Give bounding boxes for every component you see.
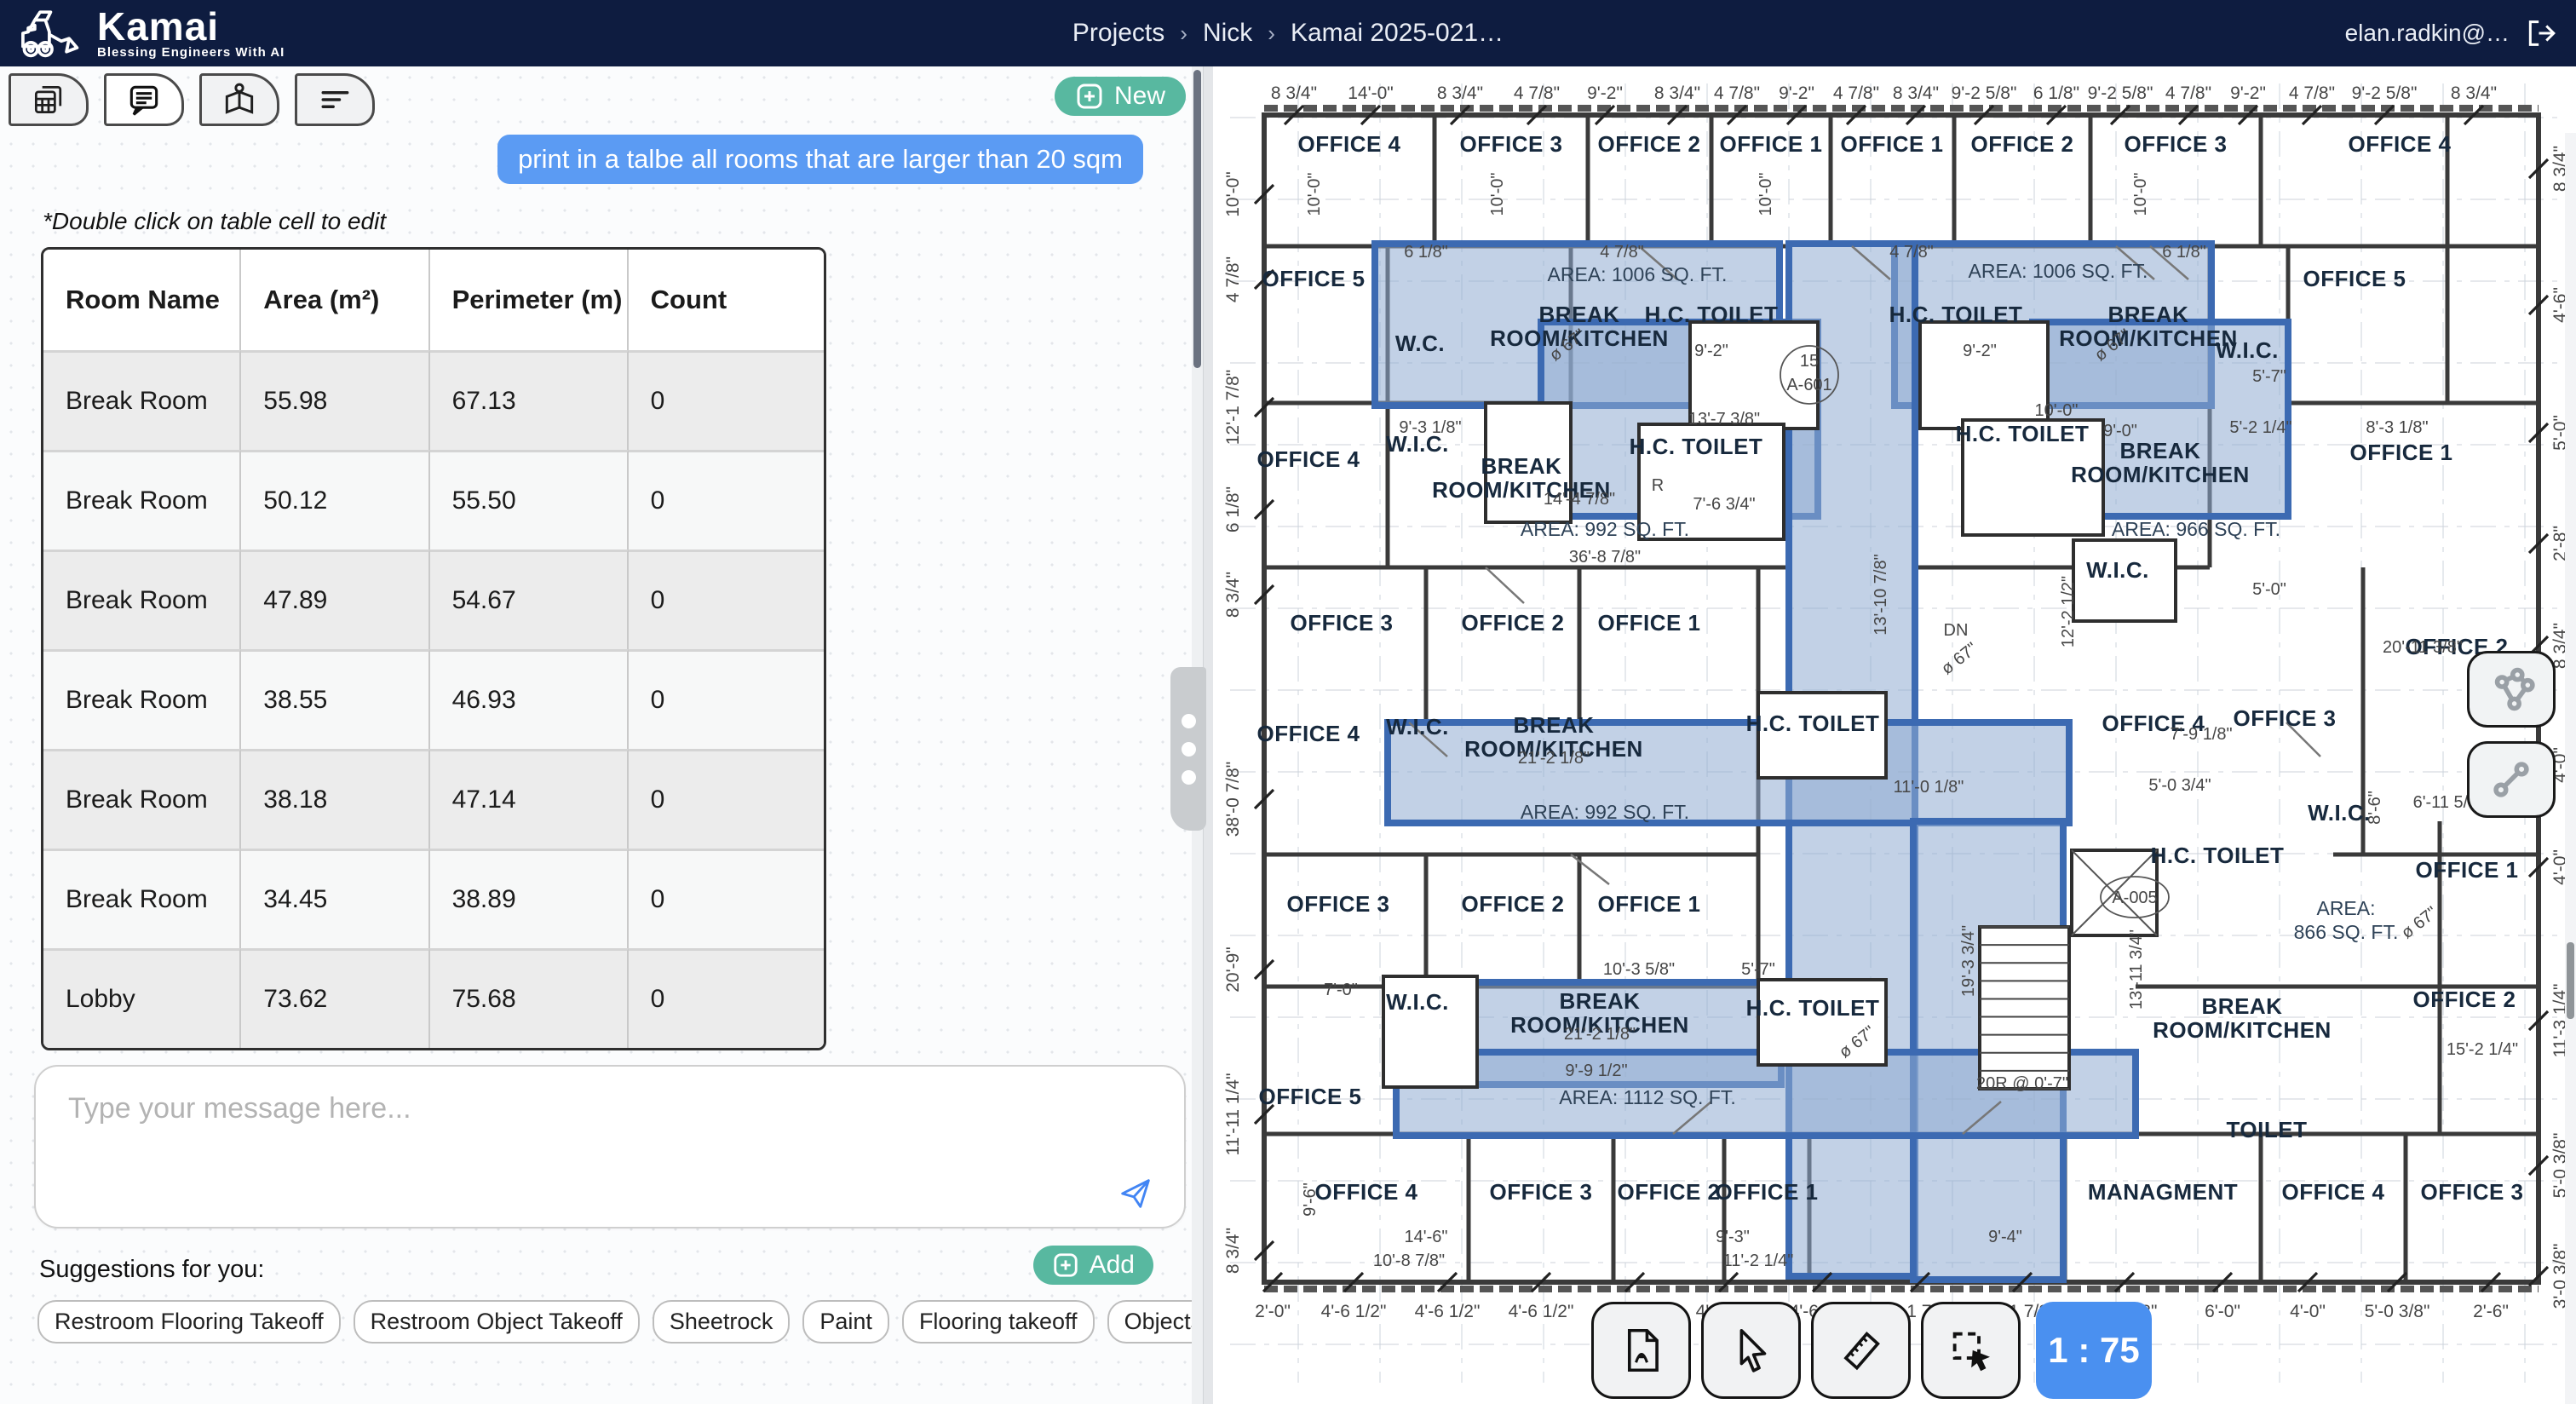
- table-cell[interactable]: 38.89: [430, 849, 629, 948]
- table-cell[interactable]: 55.50: [430, 450, 629, 550]
- svg-text:OFFICE 3: OFFICE 3: [1286, 891, 1389, 917]
- svg-text:AREA: 1006 SQ. FT.: AREA: 1006 SQ. FT.: [1548, 263, 1728, 285]
- tab-plan-library[interactable]: [199, 73, 279, 126]
- table-cell[interactable]: Break Room: [43, 450, 241, 550]
- svg-text:H.C. TOILET: H.C. TOILET: [1746, 711, 1880, 736]
- svg-text:8 3/4": 8 3/4": [1223, 572, 1243, 618]
- svg-text:9'-0": 9'-0": [2103, 422, 2137, 440]
- suggestions-row: Suggestions for you: Add: [39, 1256, 1169, 1284]
- svg-text:10'-8 7/8": 10'-8 7/8": [1373, 1252, 1445, 1270]
- floor-plan-svg[interactable]: OFFICE 4OFFICE 3OFFICE 2OFFICE 1OFFICE 1…: [1213, 66, 2576, 1404]
- breadcrumb-project[interactable]: Kamai 2025-021…: [1291, 19, 1504, 48]
- table-cell[interactable]: 38.55: [241, 649, 429, 749]
- table-cell[interactable]: 38.18: [241, 749, 429, 849]
- svg-text:5'-2 1/4": 5'-2 1/4": [2229, 418, 2291, 437]
- svg-text:A-005: A-005: [2112, 889, 2157, 907]
- svg-text:9'-6": 9'-6": [1301, 1182, 1320, 1217]
- tables-icon: [30, 81, 67, 118]
- svg-text:OFFICE 1: OFFICE 1: [1715, 1179, 1818, 1205]
- brand[interactable]: Kamai Blessing Engineers With AI: [0, 7, 285, 60]
- breadcrumb-folder[interactable]: Nick: [1203, 19, 1252, 48]
- column-header-area: Area (m²): [241, 250, 429, 350]
- logout-icon[interactable]: [2523, 16, 2557, 50]
- svg-text:2'-0": 2'-0": [1255, 1302, 1291, 1321]
- suggestion-chip[interactable]: Restroom Flooring Takeoff: [37, 1300, 341, 1344]
- svg-text:H.C. TOILET: H.C. TOILET: [2151, 843, 2285, 868]
- svg-text:6'-0": 6'-0": [2205, 1302, 2240, 1321]
- svg-text:21'-2 1/8": 21'-2 1/8": [1518, 749, 1590, 768]
- svg-text:4 7/8": 4 7/8": [1714, 83, 1760, 103]
- svg-text:H.C. TOILET: H.C. TOILET: [1746, 995, 1880, 1021]
- table-cell[interactable]: 46.93: [430, 649, 629, 749]
- brand-text: Kamai Blessing Engineers With AI: [97, 8, 285, 60]
- polygon-icon: [2487, 665, 2536, 714]
- svg-text:R: R: [1652, 476, 1664, 495]
- plus-square-icon: [1075, 82, 1104, 111]
- user-email: elan.radkin@…: [2345, 20, 2510, 47]
- svg-text:5'-0 3/8": 5'-0 3/8": [2365, 1302, 2430, 1321]
- svg-text:12'-2 1/2": 12'-2 1/2": [2059, 576, 2078, 647]
- breadcrumb-projects[interactable]: Projects: [1072, 19, 1164, 48]
- svg-text:5'-0 3/4": 5'-0 3/4": [2148, 776, 2211, 795]
- svg-text:15'-2 1/4": 15'-2 1/4": [2447, 1040, 2518, 1059]
- table-cell[interactable]: 34.45: [241, 849, 429, 948]
- svg-text:12'-1 7/8": 12'-1 7/8": [1223, 370, 1243, 446]
- suggestion-chip[interactable]: Paint: [802, 1300, 889, 1344]
- svg-text:5'-0": 5'-0": [2252, 580, 2286, 599]
- table-row[interactable]: Break Room55.9867.130: [43, 350, 824, 450]
- svg-text:OFFICE 1: OFFICE 1: [2415, 857, 2518, 883]
- svg-text:9'-2": 9'-2": [2230, 83, 2266, 103]
- suggestions-label: Suggestions for you:: [39, 1256, 264, 1284]
- svg-text:AREA: 992 SQ. FT.: AREA: 992 SQ. FT.: [1521, 801, 1689, 823]
- svg-text:OFFICE 2: OFFICE 2: [1461, 891, 1564, 917]
- pdf-file-icon: [1615, 1324, 1668, 1377]
- svg-text:OFFICE 4: OFFICE 4: [1256, 446, 1360, 472]
- svg-text:8 3/4": 8 3/4": [1437, 83, 1483, 103]
- svg-text:7'-6 3/4": 7'-6 3/4": [1693, 495, 1755, 514]
- table-cell[interactable]: 0: [629, 450, 824, 550]
- svg-text:9'-2": 9'-2": [1694, 342, 1728, 360]
- svg-text:9'-3 1/8": 9'-3 1/8": [1399, 418, 1461, 437]
- table-row[interactable]: Break Room50.1255.500: [43, 450, 824, 550]
- svg-text:H.C. TOILET: H.C. TOILET: [1630, 434, 1763, 459]
- brand-name: Kamai: [97, 8, 285, 45]
- svg-text:5'-7": 5'-7": [1741, 960, 1775, 979]
- svg-text:OFFICE 1: OFFICE 1: [1719, 131, 1822, 157]
- table-cell[interactable]: 54.67: [430, 550, 629, 649]
- table-cell[interactable]: Break Room: [43, 649, 241, 749]
- tab-takeoff-tables[interactable]: [9, 73, 89, 126]
- table-edit-note: *Double click on table cell to edit: [43, 208, 386, 235]
- svg-text:OFFICE 3: OFFICE 3: [2233, 705, 2336, 731]
- svg-text:20'-9": 20'-9": [1223, 947, 1243, 993]
- floor-plan-viewport: OFFICE 4OFFICE 3OFFICE 2OFFICE 1OFFICE 1…: [1213, 66, 2576, 1404]
- svg-text:2'-6": 2'-6": [2473, 1302, 2509, 1321]
- svg-text:20R @ 0'-7": 20R @ 0'-7": [1976, 1074, 2068, 1093]
- input-placeholder: Type your message here...: [68, 1092, 411, 1125]
- svg-text:AREA: 992 SQ. FT.: AREA: 992 SQ. FT.: [1521, 518, 1689, 540]
- table-cell[interactable]: 0: [629, 849, 824, 948]
- breadcrumb-separator: ›: [1268, 20, 1275, 47]
- svg-text:4'-0": 4'-0": [2290, 1302, 2326, 1321]
- table-cell[interactable]: Lobby: [43, 948, 241, 1048]
- panel-tabbar: New: [0, 66, 1203, 131]
- svg-text:OFFICE 3: OFFICE 3: [1489, 1179, 1592, 1205]
- new-button-label: New: [1114, 82, 1165, 111]
- svg-text:9'-3": 9'-3": [1716, 1228, 1750, 1246]
- table-cell[interactable]: 0: [629, 649, 824, 749]
- send-icon[interactable]: [1116, 1174, 1155, 1213]
- table-cell[interactable]: 67.13: [430, 350, 629, 450]
- app-root: Kamai Blessing Engineers With AI Project…: [0, 0, 2576, 1404]
- svg-text:15: 15: [1800, 352, 1819, 371]
- svg-text:OFFICE 4: OFFICE 4: [1297, 131, 1400, 157]
- svg-text:MANAGMENT: MANAGMENT: [2088, 1179, 2238, 1205]
- cursor-tool-button[interactable]: [1701, 1302, 1801, 1399]
- svg-text:W.C.: W.C.: [1395, 331, 1445, 356]
- svg-text:8'-3 1/8": 8'-3 1/8": [2366, 418, 2428, 437]
- svg-text:W.I.C.: W.I.C.: [1386, 989, 1449, 1015]
- svg-text:6 1/8": 6 1/8": [1404, 243, 1448, 262]
- svg-text:W.I.C.: W.I.C.: [2308, 800, 2371, 826]
- svg-text:4'-6 1/2": 4'-6 1/2": [1415, 1302, 1481, 1321]
- svg-text:4 7/8": 4 7/8": [1600, 243, 1644, 262]
- svg-text:5'-7": 5'-7": [2252, 367, 2286, 386]
- svg-text:9'-2": 9'-2": [1779, 83, 1814, 103]
- suggestion-chip[interactable]: Flooring takeoff: [902, 1300, 1095, 1344]
- plus-square-icon: [1052, 1252, 1079, 1279]
- svg-text:A-601: A-601: [1786, 376, 1831, 394]
- svg-text:8'-6": 8'-6": [2366, 791, 2384, 825]
- table-row[interactable]: Break Room38.5546.930: [43, 649, 824, 749]
- svg-text:OFFICE 4: OFFICE 4: [2281, 1179, 2384, 1205]
- polygon-takeoff-button[interactable]: [2467, 651, 2556, 728]
- add-button-label: Add: [1090, 1251, 1135, 1280]
- svg-text:4 7/8": 4 7/8": [1889, 243, 1934, 262]
- svg-text:10'-3 5/8": 10'-3 5/8": [1603, 960, 1675, 979]
- column-header-perimeter: Perimeter (m): [430, 250, 629, 350]
- svg-text:8 3/4": 8 3/4": [1654, 83, 1700, 103]
- svg-text:H.C. TOILET: H.C. TOILET: [1645, 302, 1779, 327]
- svg-text:4 7/8": 4 7/8": [1514, 83, 1560, 103]
- svg-text:OFFICE 2: OFFICE 2: [1597, 131, 1700, 157]
- svg-text:4 7/8": 4 7/8": [2165, 83, 2211, 103]
- suggestion-chip[interactable]: Sheetrock: [653, 1300, 791, 1344]
- breadcrumb: Projects › Nick › Kamai 2025-021…: [1072, 19, 1504, 48]
- svg-text:6 1/8": 6 1/8": [2033, 83, 2079, 103]
- line-segment-icon: [2487, 755, 2536, 804]
- svg-text:38'-0 7/8": 38'-0 7/8": [1223, 762, 1243, 837]
- svg-text:OFFICE 3: OFFICE 3: [2124, 131, 2227, 157]
- svg-text:OFFICE 4: OFFICE 4: [1256, 721, 1360, 746]
- svg-text:OFFICE 2: OFFICE 2: [1970, 131, 2073, 157]
- svg-text:OFFICE 5: OFFICE 5: [1262, 266, 1365, 291]
- plan-toolbar: 1 : 75: [1591, 1302, 2152, 1399]
- cursor-icon: [1725, 1324, 1778, 1377]
- svg-text:4'-6 1/2": 4'-6 1/2": [1321, 1302, 1387, 1321]
- svg-text:9'-2 5/8": 9'-2 5/8": [2352, 83, 2418, 103]
- svg-text:AREA: 1006 SQ. FT.: AREA: 1006 SQ. FT.: [1969, 260, 2148, 282]
- message-input[interactable]: Type your message here...: [34, 1065, 1186, 1228]
- table-cell[interactable]: 73.62: [241, 948, 429, 1048]
- rooms-table[interactable]: Room Name Area (m²) Perimeter (m) Count …: [41, 247, 826, 1050]
- table-cell[interactable]: 50.12: [241, 450, 429, 550]
- svg-text:OFFICE 2: OFFICE 2: [2412, 987, 2516, 1012]
- table-cell[interactable]: 75.68: [430, 948, 629, 1048]
- svg-text:10'-0": 10'-0": [2131, 173, 2150, 216]
- table-row[interactable]: Break Room34.4538.890: [43, 849, 824, 948]
- svg-text:8 3/4": 8 3/4": [2451, 83, 2497, 103]
- marquee-select-button[interactable]: [1921, 1302, 2021, 1399]
- svg-text:11'-11 1/4": 11'-11 1/4": [1223, 1073, 1243, 1155]
- svg-text:OFFICE 5: OFFICE 5: [2303, 266, 2406, 291]
- svg-text:10'-0": 10'-0": [1223, 171, 1243, 217]
- top-navbar: Kamai Blessing Engineers With AI Project…: [0, 0, 2576, 66]
- svg-text:10'-0": 10'-0": [2035, 401, 2079, 420]
- user-message-bubble: print in a talbe all rooms that are larg…: [497, 135, 1143, 184]
- svg-text:OFFICE 1: OFFICE 1: [1597, 891, 1700, 917]
- svg-text:OFFICE 2: OFFICE 2: [1461, 610, 1564, 636]
- table-cell[interactable]: Break Room: [43, 849, 241, 948]
- column-header-room-name: Room Name: [43, 250, 241, 350]
- table-row[interactable]: Break Room47.8954.670: [43, 550, 824, 649]
- table-cell[interactable]: 0: [629, 948, 824, 1048]
- svg-text:9'-2 5/8": 9'-2 5/8": [2088, 83, 2153, 103]
- table-cell[interactable]: Break Room: [43, 350, 241, 450]
- svg-text:36'-8 7/8": 36'-8 7/8": [1569, 548, 1641, 567]
- svg-text:14'-0": 14'-0": [1348, 83, 1394, 103]
- sort-lines-icon: [316, 81, 354, 118]
- svg-text:W.I.C.: W.I.C.: [2216, 337, 2279, 363]
- svg-text:6 1/8": 6 1/8": [2162, 243, 2206, 262]
- svg-text:4 7/8": 4 7/8": [1833, 83, 1879, 103]
- svg-text:OFFICE 2: OFFICE 2: [1617, 1179, 1720, 1205]
- svg-text:W.I.C.: W.I.C.: [2086, 557, 2149, 583]
- column-header-count: Count: [629, 250, 824, 350]
- panel-resize-handle[interactable]: [1170, 667, 1206, 831]
- measure-tool-button[interactable]: [1811, 1302, 1911, 1399]
- table-cell[interactable]: 0: [629, 350, 824, 450]
- svg-text:10'-0": 10'-0": [1488, 173, 1507, 216]
- svg-text:H.C. TOILET: H.C. TOILET: [1889, 302, 2023, 327]
- svg-text:9'-9 1/2": 9'-9 1/2": [1565, 1062, 1627, 1080]
- svg-text:OFFICE 1: OFFICE 1: [1840, 131, 1943, 157]
- svg-text:OFFICE 1: OFFICE 1: [1597, 610, 1700, 636]
- breadcrumb-separator: ›: [1180, 20, 1187, 47]
- side-tools: [2467, 651, 2556, 818]
- svg-text:10'-0": 10'-0": [1305, 173, 1324, 216]
- suggestion-chips: Restroom Flooring TakeoffRestroom Object…: [37, 1300, 1177, 1344]
- svg-text:13'-7 3/8": 13'-7 3/8": [1688, 410, 1760, 429]
- svg-text:4 7/8": 4 7/8": [1223, 256, 1243, 302]
- svg-text:21'-2 1/8": 21'-2 1/8": [1564, 1025, 1636, 1044]
- scale-badge[interactable]: 1 : 75: [2036, 1302, 2152, 1399]
- add-suggestion-button[interactable]: Add: [1033, 1246, 1153, 1285]
- svg-text:OFFICE 3: OFFICE 3: [1459, 131, 1562, 157]
- svg-text:OFFICE 5: OFFICE 5: [1258, 1084, 1361, 1109]
- svg-text:AREA: 1112 SQ. FT.: AREA: 1112 SQ. FT.: [1559, 1086, 1736, 1108]
- svg-text:9'-4": 9'-4": [1988, 1228, 2022, 1246]
- svg-text:OFFICE 3: OFFICE 3: [1290, 610, 1393, 636]
- table-row[interactable]: Break Room38.1847.140: [43, 749, 824, 849]
- table-cell[interactable]: Break Room: [43, 550, 241, 649]
- svg-text:9'-2": 9'-2": [1963, 342, 1997, 360]
- tab-summary[interactable]: [295, 73, 375, 126]
- chat-icon: [125, 81, 163, 118]
- plan-scrollbar[interactable]: [2565, 133, 2576, 1404]
- svg-text:9'-2 5/8": 9'-2 5/8": [1952, 83, 2017, 103]
- svg-text:TOILET: TOILET: [2227, 1117, 2308, 1142]
- svg-text:OFFICE 1: OFFICE 1: [2349, 440, 2452, 465]
- svg-text:8 3/4": 8 3/4": [1893, 83, 1939, 103]
- plan-scrollbar-thumb[interactable]: [2567, 942, 2574, 1019]
- table-cell[interactable]: 47.14: [430, 749, 629, 849]
- svg-text:7'-9 1/8": 7'-9 1/8": [2170, 725, 2232, 744]
- svg-text:9'-2": 9'-2": [1587, 83, 1623, 103]
- export-pdf-button[interactable]: [1591, 1302, 1691, 1399]
- svg-text:7'-0": 7'-0": [1324, 981, 1358, 999]
- panel-scrollbar-thumb[interactable]: [1193, 70, 1201, 368]
- svg-text:OFFICE 4: OFFICE 4: [2348, 131, 2451, 157]
- svg-text:14'-4 7/8": 14'-4 7/8": [1544, 490, 1615, 509]
- new-chat-button[interactable]: New: [1055, 77, 1186, 116]
- tab-chat[interactable]: [104, 73, 184, 126]
- svg-text:20'-11 3/8": 20'-11 3/8": [2383, 638, 2463, 657]
- table-cell[interactable]: 55.98: [241, 350, 429, 450]
- svg-text:4'-6 1/2": 4'-6 1/2": [1509, 1302, 1574, 1321]
- map-book-icon: [221, 81, 258, 118]
- table-cell[interactable]: 0: [629, 749, 824, 849]
- user-area: elan.radkin@…: [2345, 16, 2557, 50]
- svg-text:11'-0 1/8": 11'-0 1/8": [1894, 778, 1964, 797]
- user-message-row: print in a talbe all rooms that are larg…: [497, 135, 1143, 184]
- svg-text:19'-3 3/4": 19'-3 3/4": [1959, 925, 1978, 997]
- table-header-row: Room Name Area (m²) Perimeter (m) Count: [43, 250, 824, 350]
- table-cell[interactable]: 0: [629, 550, 824, 649]
- svg-text:DN: DN: [1944, 621, 1969, 640]
- table-cell[interactable]: Break Room: [43, 749, 241, 849]
- kamai-loader-logo-icon: [15, 7, 89, 60]
- segment-measure-button[interactable]: [2467, 741, 2556, 818]
- ruler-icon: [1835, 1324, 1888, 1377]
- svg-text:W.I.C.: W.I.C.: [1386, 714, 1449, 739]
- table-cell[interactable]: 47.89: [241, 550, 429, 649]
- svg-text:OFFICE 3: OFFICE 3: [2420, 1179, 2523, 1205]
- brand-tagline: Blessing Engineers With AI: [97, 45, 285, 60]
- svg-text:8 3/4": 8 3/4": [1223, 1228, 1243, 1274]
- chat-panel: New print in a talbe all rooms that are …: [0, 66, 1203, 1404]
- svg-text:13'-10 7/8": 13'-10 7/8": [1872, 554, 1890, 635]
- svg-text:8 3/4": 8 3/4": [1271, 83, 1317, 103]
- svg-text:AREA: 966 SQ. FT.: AREA: 966 SQ. FT.: [2112, 518, 2280, 540]
- svg-text:H.C. TOILET: H.C. TOILET: [1956, 421, 2090, 446]
- svg-text:OFFICE 4: OFFICE 4: [1314, 1179, 1417, 1205]
- suggestion-chip[interactable]: Restroom Object Takeoff: [354, 1300, 640, 1344]
- marquee-select-icon: [1945, 1324, 1998, 1377]
- svg-text:11'-2 1/4": 11'-2 1/4": [1723, 1252, 1794, 1270]
- svg-text:13'-11 3/4": 13'-11 3/4": [2127, 929, 2146, 1010]
- svg-text:6 1/8": 6 1/8": [1223, 486, 1243, 532]
- svg-text:10'-0": 10'-0": [1757, 173, 1775, 216]
- svg-text:4 7/8": 4 7/8": [2289, 83, 2335, 103]
- svg-text:14'-6": 14'-6": [1405, 1228, 1448, 1246]
- table-row[interactable]: Lobby73.6275.680: [43, 948, 824, 1048]
